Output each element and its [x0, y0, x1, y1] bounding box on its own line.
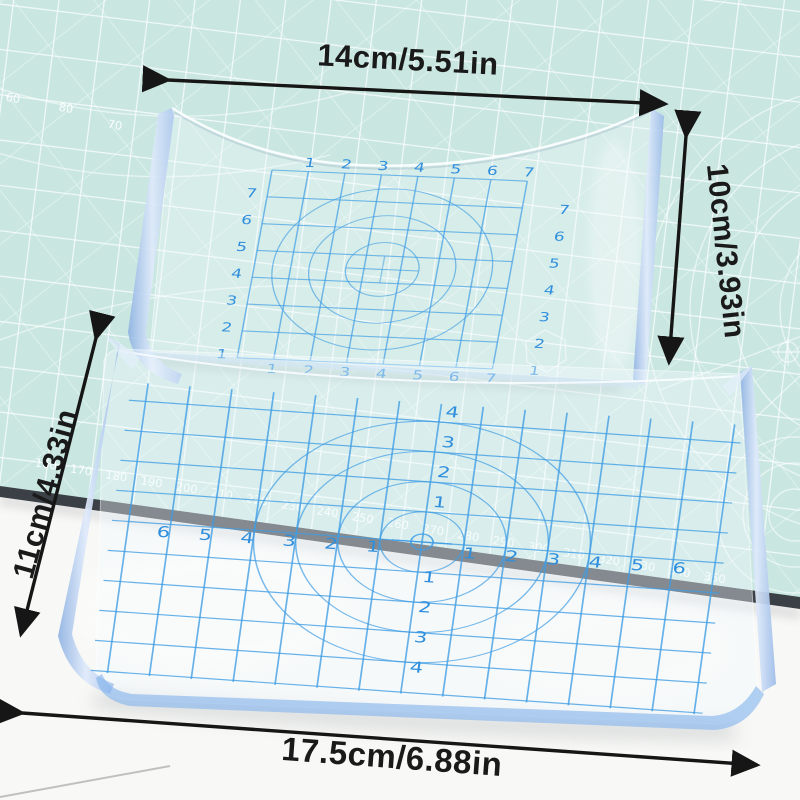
product-photo: 1601701801902002102202302402502602702802…	[0, 0, 800, 800]
lower-number-axis-up: 2	[436, 464, 452, 482]
lower-stamping-board: 65432112345643211234	[58, 336, 776, 730]
product-photo-canvas: 1601701801902002102202302402502602702802…	[0, 0, 800, 800]
lower-number-axis-right: 6	[671, 560, 687, 578]
lower-number-axis-right: 1	[462, 545, 478, 563]
lower-number-axis-up: 4	[444, 404, 460, 422]
lower-number-axis-left: 3	[281, 532, 297, 550]
lower-number-axis-right: 5	[629, 557, 645, 575]
mat-curve-number: 70	[107, 117, 124, 133]
lower-number-axis-left: 6	[156, 524, 172, 542]
upper-board-glare	[589, 140, 641, 370]
lower-number-axis-up: 1	[432, 494, 448, 512]
lower-number-axis-left: 2	[323, 535, 339, 553]
lower-number-axis-down: 4	[409, 659, 425, 677]
lower-number-axis-right: 2	[504, 548, 520, 566]
lower-number-axis-down: 1	[421, 569, 437, 587]
lower-number-axis-right: 4	[587, 554, 603, 572]
mat-curve-number: 80	[58, 100, 75, 116]
lower-board-glare-left	[70, 550, 350, 670]
lower-number-axis-down: 2	[417, 599, 433, 617]
lower-number-axis-right: 3	[546, 551, 562, 569]
lower-number-axis-up: 3	[440, 434, 456, 452]
lower-number-axis-left: 1	[365, 538, 381, 556]
lower-number-axis-down: 3	[413, 629, 429, 647]
lower-number-axis-left: 4	[239, 529, 255, 547]
lower-number-axis-left: 5	[197, 526, 213, 544]
lower-board-glare-right	[490, 602, 730, 698]
mat-curve-number: 60	[5, 90, 22, 106]
